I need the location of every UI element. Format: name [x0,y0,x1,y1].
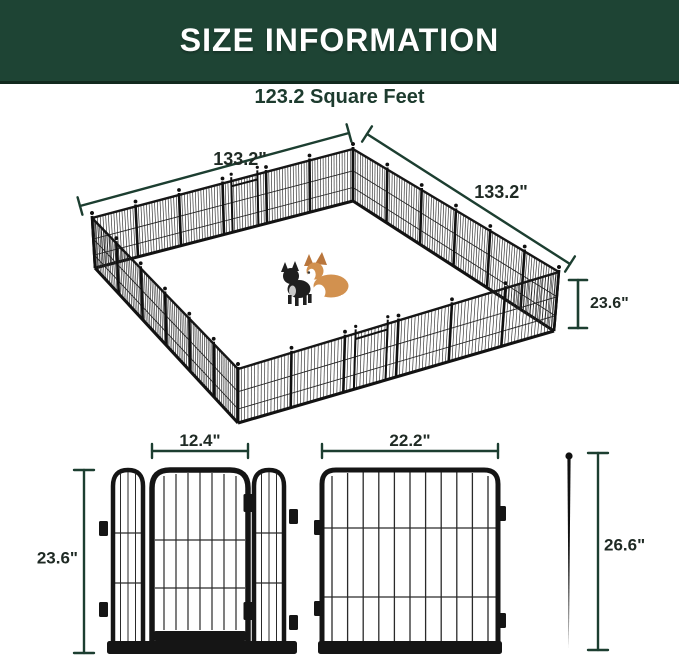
door-panel-right-section [254,470,284,643]
pen-side-left-dim-label: 133.2" [213,149,267,169]
panel-width-dim-label: 22.2" [389,431,430,450]
pen-height-dim-label: 23.6" [590,295,629,312]
door-width-dim-label: 12.4" [179,431,220,450]
size-information-page: SIZE INFORMATION 123.2 Square Feet 133.2… [0,0,679,656]
connector-tab [289,509,298,524]
connector-tab [99,521,108,536]
connector-tab [289,615,298,630]
regular-panel-wires [324,472,496,641]
stake-height-dim-label: 26.6" [604,535,645,554]
gate-hinge-top [244,494,254,512]
gate-hinge-bottom [244,602,254,620]
connector-tab [497,506,506,521]
ground-stake [565,452,572,648]
connector-tab [314,601,323,616]
wall-front-right [236,265,561,423]
door-panel-left-section [113,470,143,643]
regular-panel-bottom-bar [318,641,502,654]
wall-front-left [90,211,240,423]
door-panel-height-dim-label: 23.6" [37,548,78,567]
regular-panel-front-view: 22.2" [314,431,506,654]
connector-tab [497,613,506,628]
pen-side-right-dim-label: 133.2" [474,182,528,202]
size-diagram: 133.2" 133.2" 23.6" [0,0,679,656]
french-bulldog-illustration [281,261,312,306]
pen-height-dimension [569,280,587,328]
gate-door [152,470,254,645]
connector-tab [99,602,108,617]
door-panel-front-view: 23.6" 12.4" [37,431,298,654]
door-panel-bottom-bar [107,641,297,654]
connector-tab [314,520,323,535]
